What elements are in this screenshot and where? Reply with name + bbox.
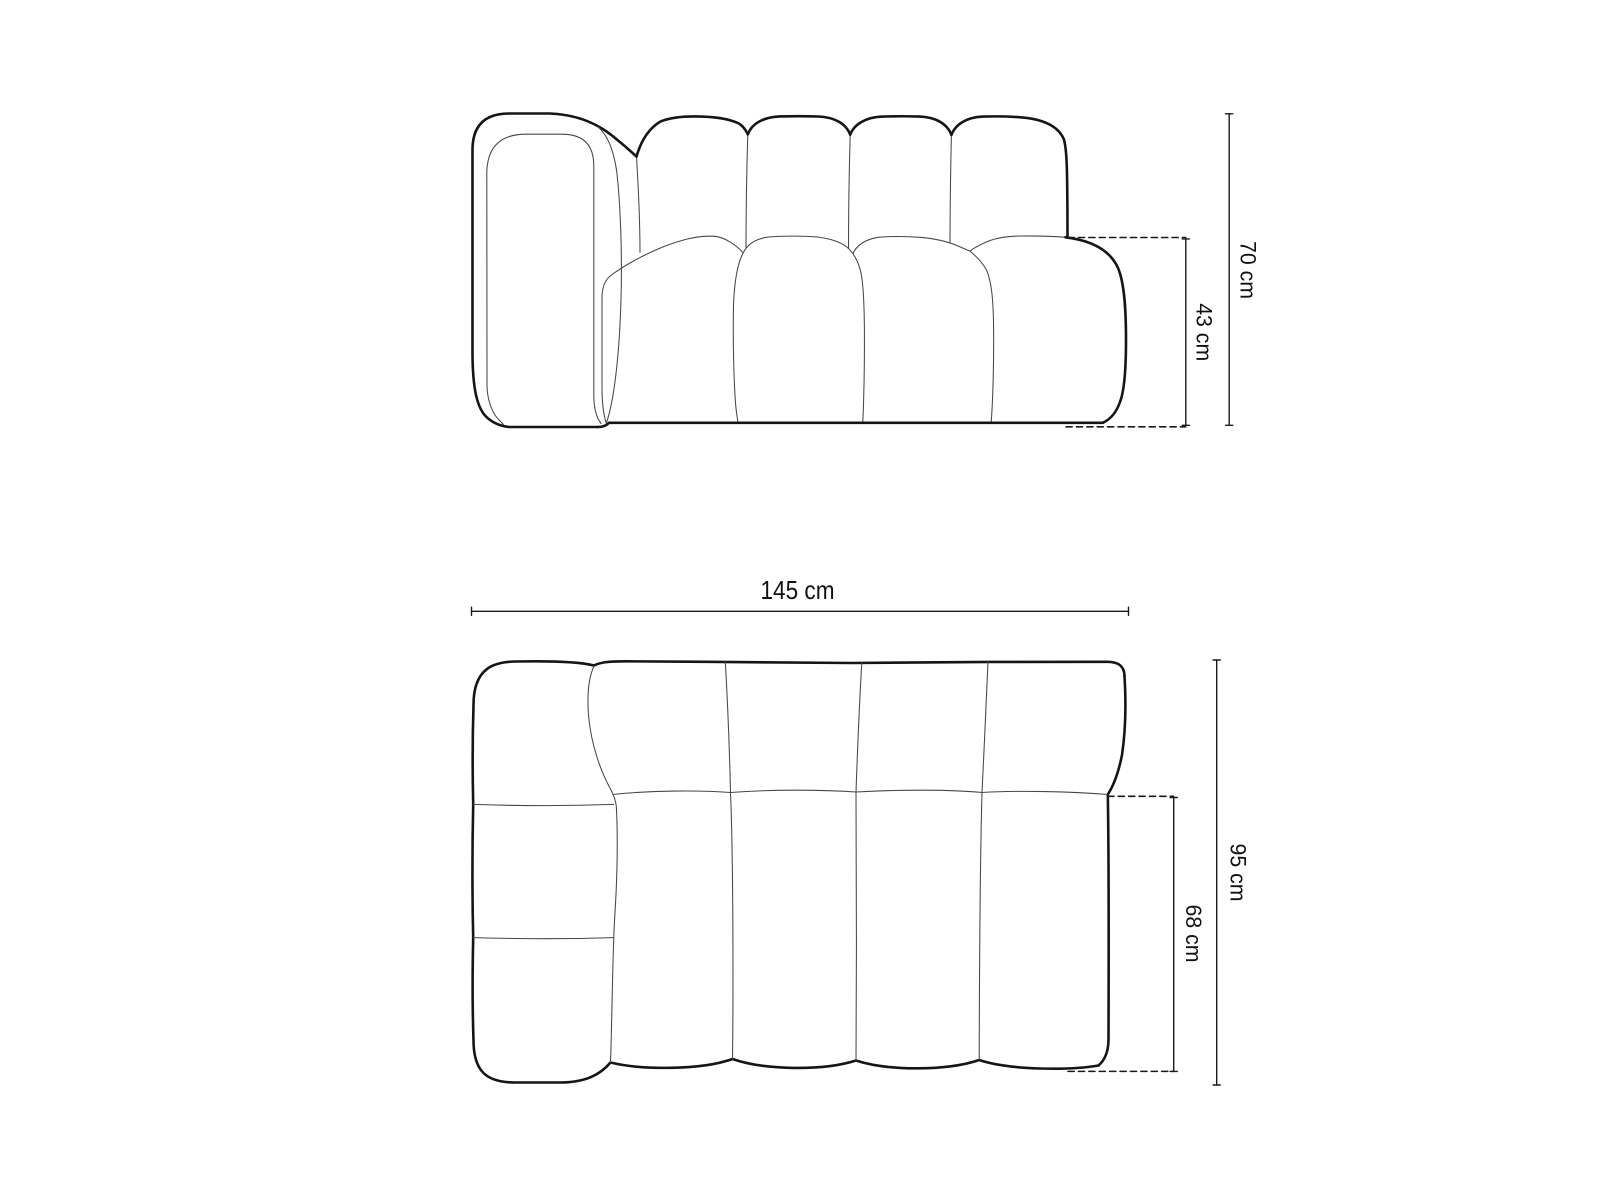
- svg-text:145 cm: 145 cm: [761, 575, 835, 605]
- svg-text:95 cm: 95 cm: [1226, 844, 1251, 902]
- svg-text:70 cm: 70 cm: [1235, 241, 1260, 299]
- svg-text:68 cm: 68 cm: [1181, 905, 1206, 963]
- svg-text:43 cm: 43 cm: [1191, 303, 1216, 361]
